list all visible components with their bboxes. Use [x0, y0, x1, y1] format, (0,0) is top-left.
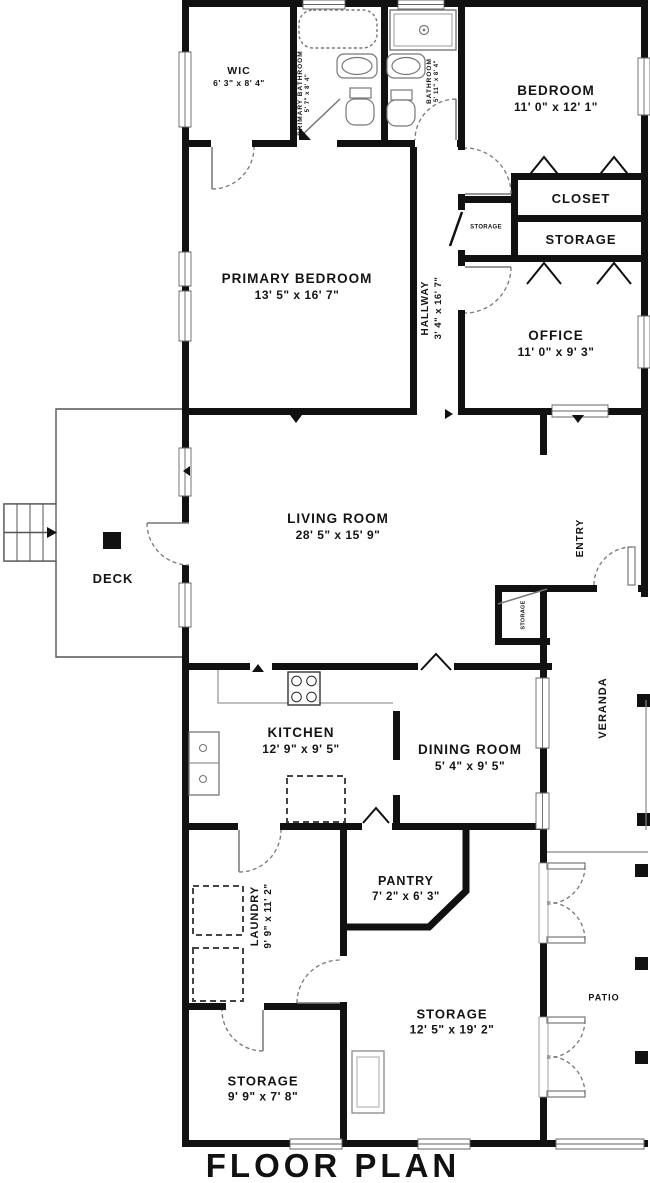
bottom-storage-label: STORAGE 9' 9" x 7' 8"	[227, 1073, 298, 1104]
bathroom-name: BATHROOM	[426, 58, 434, 104]
deck-label: DECK	[93, 571, 134, 587]
living-room-label: LIVING ROOM 28' 5" x 15' 9"	[287, 511, 389, 543]
primary-bedroom-label: PRIMARY BEDROOM 13' 5" x 16' 7"	[222, 271, 373, 303]
large-storage-dims: 12' 5" x 19' 2"	[410, 1023, 495, 1038]
office-name: OFFICE	[518, 328, 595, 345]
primary-bathroom-label: PRIMARY BATHROOM 5' 7" x 8' 4"	[297, 50, 313, 135]
deck-name: DECK	[93, 571, 134, 587]
kitchen-dims: 12' 9" x 9' 5"	[262, 742, 339, 757]
entry-label: ENTRY	[575, 519, 588, 558]
large-storage-label: STORAGE 12' 5" x 19' 2"	[410, 1006, 495, 1037]
bedroom-dims: 11' 0" x 12' 1"	[514, 100, 598, 115]
bedroom-label: BEDROOM 11' 0" x 12' 1"	[514, 83, 598, 115]
closet-name: CLOSET	[552, 191, 611, 207]
pantry-dims: 7' 2" x 6' 3"	[372, 890, 440, 904]
patio-door-leaf-1	[547, 863, 585, 869]
laundry-dims: 9' 9" x 11' 2"	[263, 883, 276, 948]
wic-name: WIC	[213, 65, 265, 78]
kitchen-sink-fixture	[189, 732, 219, 795]
bathroom-toilet-tank	[391, 90, 412, 100]
dining-room-dims: 5' 4" x 9' 5"	[418, 759, 522, 774]
entry-door-leaf	[628, 547, 635, 585]
patio-label: PATIO	[588, 992, 619, 1003]
hallway-label: HALLWAY 3' 4" x 16' 7"	[420, 277, 444, 340]
floor-plan: WIC 6' 3" x 8' 4" PRIMARY BATHROOM 5' 7"…	[0, 0, 650, 1183]
hallway-name: HALLWAY	[420, 277, 433, 340]
small-storage-name: STORAGE	[470, 224, 502, 232]
living-room-dims: 28' 5" x 15' 9"	[287, 528, 389, 543]
hallway-dims: 3' 4" x 16' 7"	[432, 277, 444, 340]
bathtub-icon	[299, 10, 377, 48]
wic-dims: 6' 3" x 8' 4"	[213, 78, 265, 89]
floor-plan-drawing	[0, 0, 650, 1183]
bathroom-dims: 5' 11" x 8' 4"	[434, 58, 442, 104]
deck-inner-edge	[62, 416, 182, 650]
living-room-name: LIVING ROOM	[287, 511, 389, 528]
laundry-appliance-2	[193, 948, 243, 1001]
primary-bathroom-dims: 5' 7" x 8' 4"	[305, 50, 313, 135]
walls	[182, 0, 648, 1147]
dining-room-name: DINING ROOM	[418, 742, 522, 759]
water-heater-fixture	[352, 1051, 384, 1113]
primary-bedroom-name: PRIMARY BEDROOM	[222, 271, 373, 288]
primary-bedroom-dims: 13' 5" x 16' 7"	[222, 288, 373, 303]
bathroom-label: BATHROOM 5' 11" x 8' 4"	[426, 58, 442, 104]
toilet-fixtures	[346, 88, 415, 126]
hall-storage-label: STORAGE	[545, 232, 616, 248]
bottom-storage-name: STORAGE	[227, 1073, 298, 1089]
veranda-name: VERANDA	[597, 677, 611, 738]
page-title: FLOOR PLAN	[206, 1147, 460, 1183]
bedroom-name: BEDROOM	[514, 83, 598, 100]
patio-door-leaf-3	[547, 1017, 585, 1023]
kitchen-name: KITCHEN	[262, 725, 339, 742]
bathroom-toilet-icon	[387, 100, 415, 126]
bathtub-fixture	[299, 10, 377, 48]
door-leaves	[147, 99, 511, 1051]
patio-door-leaf-4	[547, 1091, 585, 1097]
pantry-name: PANTRY	[372, 874, 440, 890]
laundry-label: LAUNDRY 9' 9" x 11' 2"	[249, 883, 275, 948]
veranda-label: VERANDA	[597, 677, 611, 738]
kitchen-label: KITCHEN 12' 9" x 9' 5"	[262, 725, 339, 757]
primary-bathroom-name: PRIMARY BATHROOM	[297, 50, 305, 135]
large-storage-name: STORAGE	[410, 1006, 495, 1022]
door-leaf-rects	[547, 547, 635, 1097]
office-dims: 11' 0" x 9' 3"	[518, 345, 595, 360]
laundry-appliance-1	[193, 886, 243, 935]
door-swing-arcs	[147, 99, 632, 1094]
primary-bath-toilet-tank	[350, 88, 371, 98]
shower-drain-dot	[423, 29, 426, 32]
entry-storage-label: STORAGE	[521, 600, 528, 629]
dining-room-label: DINING ROOM 5' 4" x 9' 5"	[418, 742, 522, 774]
primary-bath-toilet-icon	[346, 99, 374, 125]
wic-label: WIC 6' 3" x 8' 4"	[213, 65, 265, 89]
stove-fixture	[288, 672, 320, 705]
pantry-label: PANTRY 7' 2" x 6' 3"	[372, 874, 440, 904]
entry-storage-name: STORAGE	[521, 600, 528, 629]
laundry-name: LAUNDRY	[249, 883, 263, 948]
kitchen-island-dashed	[287, 776, 345, 822]
shower-fixture	[390, 10, 456, 50]
bottom-storage-dims: 9' 9" x 7' 8"	[227, 1090, 298, 1105]
patio-name: PATIO	[588, 992, 619, 1003]
closet-label: CLOSET	[552, 191, 611, 207]
hall-storage-name: STORAGE	[545, 232, 616, 248]
entry-name: ENTRY	[575, 519, 588, 558]
small-storage-label: STORAGE	[470, 224, 502, 232]
office-label: OFFICE 11' 0" x 9' 3"	[518, 328, 595, 360]
patio-door-leaf-2	[547, 937, 585, 943]
